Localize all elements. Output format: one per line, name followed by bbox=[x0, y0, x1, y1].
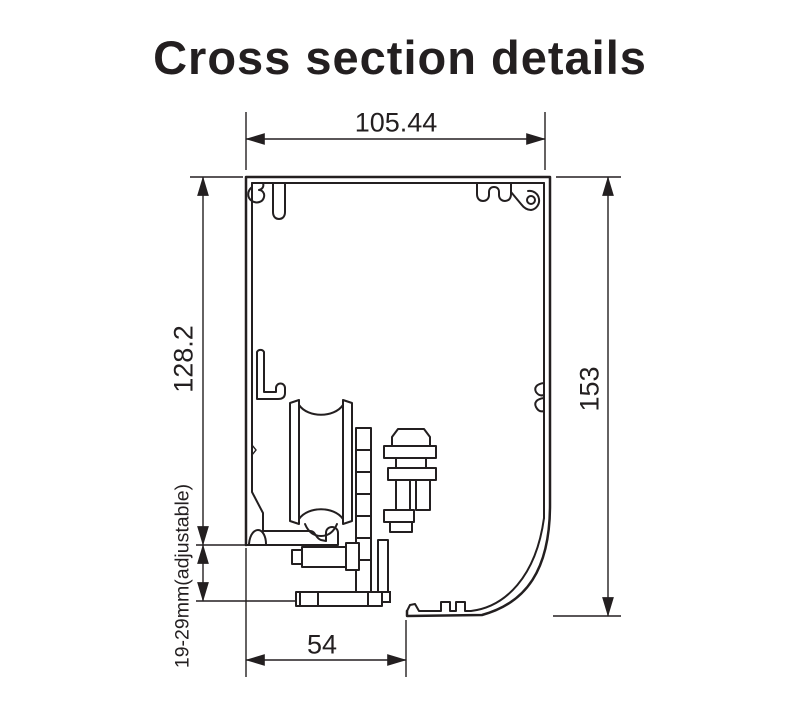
dimension-label-left-height: 128.2 bbox=[171, 325, 198, 393]
adjustment-bolt bbox=[292, 543, 359, 570]
profile-bottom-flange-notches bbox=[407, 518, 544, 611]
profile-hook-curl bbox=[527, 196, 535, 204]
bolt-shaft bbox=[302, 547, 346, 567]
profile-ledge-dome bbox=[249, 530, 266, 544]
page: Cross section details bbox=[0, 0, 800, 720]
bolt-head bbox=[292, 550, 302, 564]
roller-wheel bbox=[290, 400, 352, 536]
mounting-plate-end-block bbox=[300, 592, 318, 606]
profile-right-wall-bumps bbox=[535, 383, 544, 411]
stack-plate-3 bbox=[388, 468, 436, 480]
bottom-mounting-plate bbox=[296, 592, 390, 606]
stack-plate-4 bbox=[384, 510, 414, 522]
stack-plate-2 bbox=[396, 458, 426, 468]
bolt-cap bbox=[392, 429, 430, 446]
stack-bar-mid bbox=[396, 480, 410, 510]
wheel-right-flange bbox=[343, 400, 352, 524]
roller-carriage bbox=[290, 400, 436, 606]
stack-lower-bar bbox=[378, 540, 388, 592]
bolt-collar bbox=[346, 543, 359, 570]
stack-plate-1 bbox=[384, 446, 436, 458]
dimension-label-bottom-width: 54 bbox=[307, 632, 337, 659]
profile-top-right-clip bbox=[477, 183, 511, 201]
wheel-barrel-bottom bbox=[299, 509, 343, 519]
dimension-label-hanger-adjustment: 19-29mm(adjustable) bbox=[173, 484, 193, 668]
wheel-left-flange bbox=[290, 400, 299, 524]
stack-plate-5 bbox=[390, 522, 412, 532]
dimension-label-top-width: 105.44 bbox=[355, 110, 438, 137]
wheel-barrel-top bbox=[299, 405, 343, 415]
profile-left-wall-bracket bbox=[257, 350, 285, 399]
stack-bar-right bbox=[416, 480, 430, 510]
profile-top-left-fin bbox=[273, 183, 285, 219]
carriage-bolt-stack bbox=[378, 429, 436, 592]
profile-top-left-curl-icon bbox=[248, 183, 264, 202]
dimension-label-right-height: 153 bbox=[577, 366, 604, 411]
